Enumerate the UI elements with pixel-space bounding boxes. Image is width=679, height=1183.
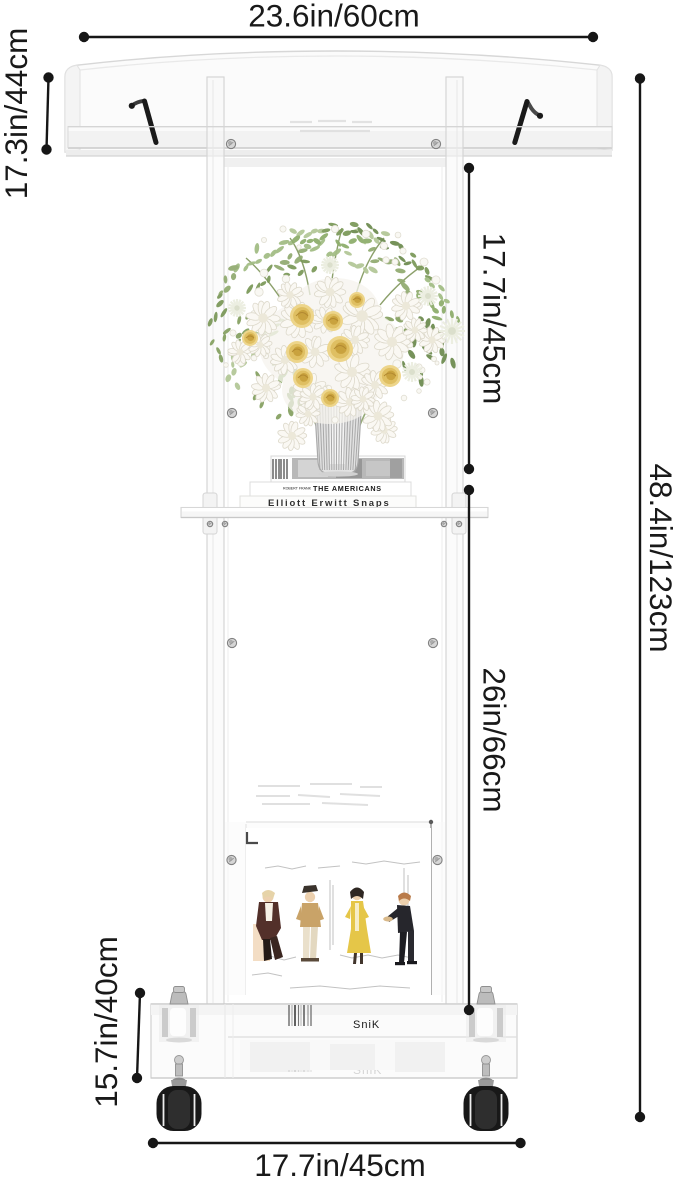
svg-text:THE AMERICANS: THE AMERICANS — [313, 484, 382, 493]
svg-text:15.7in/40cm: 15.7in/40cm — [88, 936, 124, 1108]
svg-text:ROBERT FRANK: ROBERT FRANK — [283, 487, 312, 491]
svg-text:17.7in/45cm: 17.7in/45cm — [254, 1147, 426, 1183]
svg-text:17.7in/45cm: 17.7in/45cm — [477, 233, 513, 405]
svg-text:17.3in/44cm: 17.3in/44cm — [0, 28, 34, 200]
svg-text:48.4in/123cm: 48.4in/123cm — [643, 463, 679, 652]
svg-text:26in/66cm: 26in/66cm — [477, 667, 513, 812]
svg-text:SniK: SniK — [353, 1019, 380, 1031]
svg-text:23.6in/60cm: 23.6in/60cm — [248, 0, 420, 34]
